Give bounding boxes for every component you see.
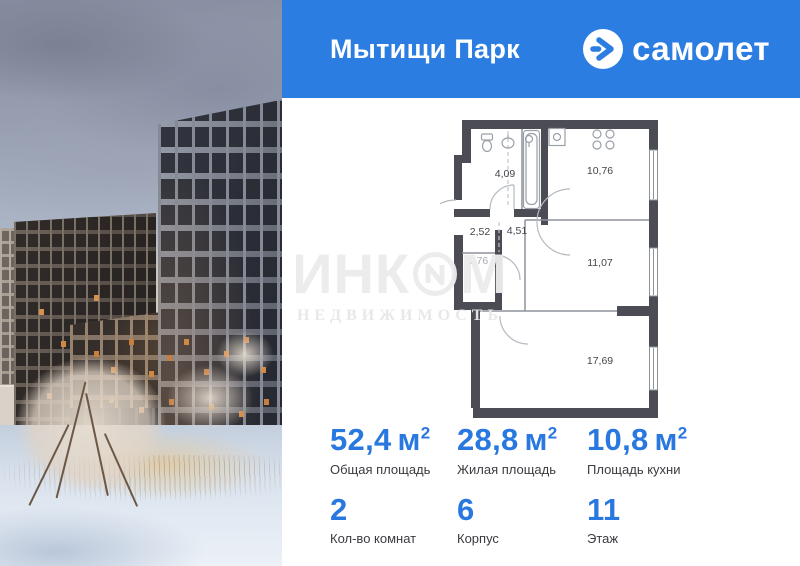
stove-icon [593, 141, 601, 149]
room-area-storage: 1,76 [468, 255, 489, 267]
stat-kitchen-area: 10,8м2 Площадь кухни [587, 424, 752, 477]
kitchen-sink-icon [554, 134, 561, 141]
watermark-part1: ИНК [292, 246, 410, 302]
toilet-icon [482, 134, 493, 140]
stove-icon [606, 141, 614, 149]
bathtub-icon [526, 134, 537, 205]
page-title: Мытищи Парк [330, 34, 520, 65]
stat-label: Кол-во комнат [330, 531, 457, 546]
stat-label: Жилая площадь [457, 462, 587, 477]
stat-label: Корпус [457, 531, 587, 546]
walls [454, 120, 658, 418]
room-area-bathroom: 4,09 [495, 168, 516, 180]
toilet-icon [483, 141, 492, 152]
floor-plan: 4,09 10,76 2,52 4,51 1,76 11,07 17,69 [440, 110, 670, 425]
stat-floor-number: 11 Этаж [587, 494, 752, 547]
kitchen-sink-icon [549, 129, 565, 146]
stat-label: Этаж [587, 531, 752, 546]
stat-building-number: 6 Корпус [457, 494, 587, 547]
stove-icon [606, 130, 614, 138]
stat-living-area: 28,8м2 Жилая площадь [457, 424, 587, 477]
stat-label: Общая площадь [330, 462, 457, 477]
brand-logo: самолет [583, 29, 770, 69]
header-band: Мытищи Парк самолет [282, 0, 800, 98]
stat-label: Площадь кухни [587, 462, 752, 477]
stat-rooms-count: 2 Кол-во комнат [330, 494, 457, 547]
window-icon [650, 150, 658, 390]
room-area-kitchen: 10,76 [587, 165, 613, 177]
room-area-hallway: 2,52 [470, 226, 491, 238]
room-area-corridor: 4,51 [507, 225, 528, 237]
brand-name: самолет [632, 30, 770, 68]
stove-icon [593, 130, 601, 138]
room-area-living: 17,69 [587, 355, 613, 367]
room-area-bedroom: 11,07 [587, 257, 613, 269]
stat-total-area: 52,4м2 Общая площадь [330, 424, 457, 477]
samolet-arrow-icon [583, 29, 623, 69]
building-photo [0, 0, 282, 566]
room-labels: 4,09 10,76 2,52 4,51 1,76 11,07 17,69 [468, 165, 614, 367]
listing-card: Мытищи Парк самолет [0, 0, 800, 566]
frosty-bush [205, 322, 282, 386]
lit-windows-front [0, 0, 3, 4]
apartment-stats: 52,4м2 Общая площадь 28,8м2 Жилая площад… [330, 424, 752, 546]
kitchen-fixtures [549, 129, 614, 150]
partition-lines [462, 129, 649, 311]
